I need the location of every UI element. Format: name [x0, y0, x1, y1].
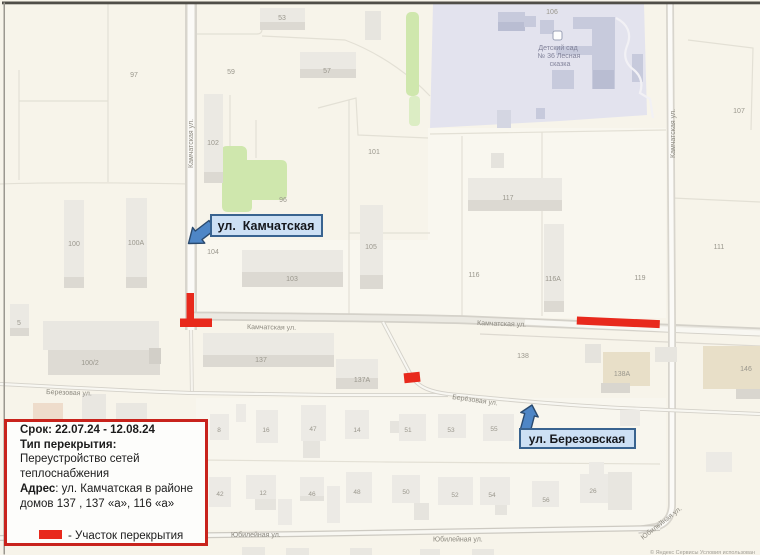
svg-text:138: 138 — [517, 353, 529, 360]
svg-text:№ 36 Лесная: № 36 Лесная — [538, 53, 581, 60]
svg-text:12: 12 — [259, 490, 267, 497]
svg-text:106: 106 — [546, 9, 558, 16]
svg-text:Детский сад: Детский сад — [538, 44, 577, 52]
svg-text:8: 8 — [217, 427, 221, 434]
svg-text:138А: 138А — [614, 371, 631, 378]
svg-text:137: 137 — [255, 357, 267, 364]
svg-text:51: 51 — [404, 427, 412, 434]
svg-text:54: 54 — [488, 492, 496, 499]
svg-text:48: 48 — [353, 489, 361, 496]
svg-text:101: 101 — [368, 149, 380, 156]
svg-text:59: 59 — [227, 69, 235, 76]
svg-text:Юбилейная ул.: Юбилейная ул. — [433, 536, 483, 544]
svg-text:52: 52 — [451, 492, 459, 499]
svg-text:56: 56 — [542, 497, 550, 504]
svg-text:14: 14 — [353, 427, 361, 434]
svg-text:47: 47 — [309, 426, 317, 433]
svg-text:104: 104 — [207, 249, 219, 256]
svg-text:100: 100 — [68, 241, 80, 248]
svg-text:50: 50 — [402, 489, 410, 496]
svg-text:16: 16 — [262, 427, 270, 434]
svg-text:96: 96 — [279, 197, 287, 204]
svg-text:105: 105 — [365, 244, 377, 251]
svg-text:97: 97 — [130, 72, 138, 79]
svg-text:26: 26 — [589, 488, 597, 495]
svg-text:100А: 100А — [128, 240, 145, 247]
svg-text:55: 55 — [490, 426, 498, 433]
svg-text:103: 103 — [286, 276, 298, 283]
svg-text:146: 146 — [740, 366, 752, 373]
svg-text:Камчатская ул.: Камчатская ул. — [670, 109, 677, 158]
svg-text:© Яндекс Сервисы Условия исп: © Яндекс Сервисы Условия использован — [650, 549, 755, 555]
svg-text:42: 42 — [216, 491, 224, 498]
svg-text:46: 46 — [308, 491, 316, 498]
svg-text:117: 117 — [502, 195, 513, 202]
svg-text:100/2: 100/2 — [81, 360, 99, 367]
svg-text:111: 111 — [714, 244, 725, 251]
svg-text:119: 119 — [634, 275, 645, 282]
svg-text:Камчатская ул.: Камчатская ул. — [247, 324, 296, 332]
svg-text:57: 57 — [323, 68, 331, 75]
svg-text:Камчатская ул.: Камчатская ул. — [188, 119, 195, 168]
svg-text:137А: 137А — [354, 377, 371, 384]
svg-text:116А: 116А — [545, 276, 561, 283]
svg-text:5: 5 — [17, 320, 21, 327]
svg-text:53: 53 — [447, 427, 455, 434]
svg-text:116: 116 — [468, 272, 479, 279]
svg-text:ул. Березовская: ул. Березовская — [529, 432, 626, 446]
svg-text:сказка: сказка — [550, 61, 571, 68]
svg-text:Юбилейная ул.: Юбилейная ул. — [231, 531, 281, 539]
svg-text:53: 53 — [278, 15, 286, 22]
svg-text:107: 107 — [733, 108, 745, 115]
svg-text:102: 102 — [207, 140, 219, 147]
svg-text:ул. Камчатская: ул. Камчатская — [218, 219, 315, 233]
